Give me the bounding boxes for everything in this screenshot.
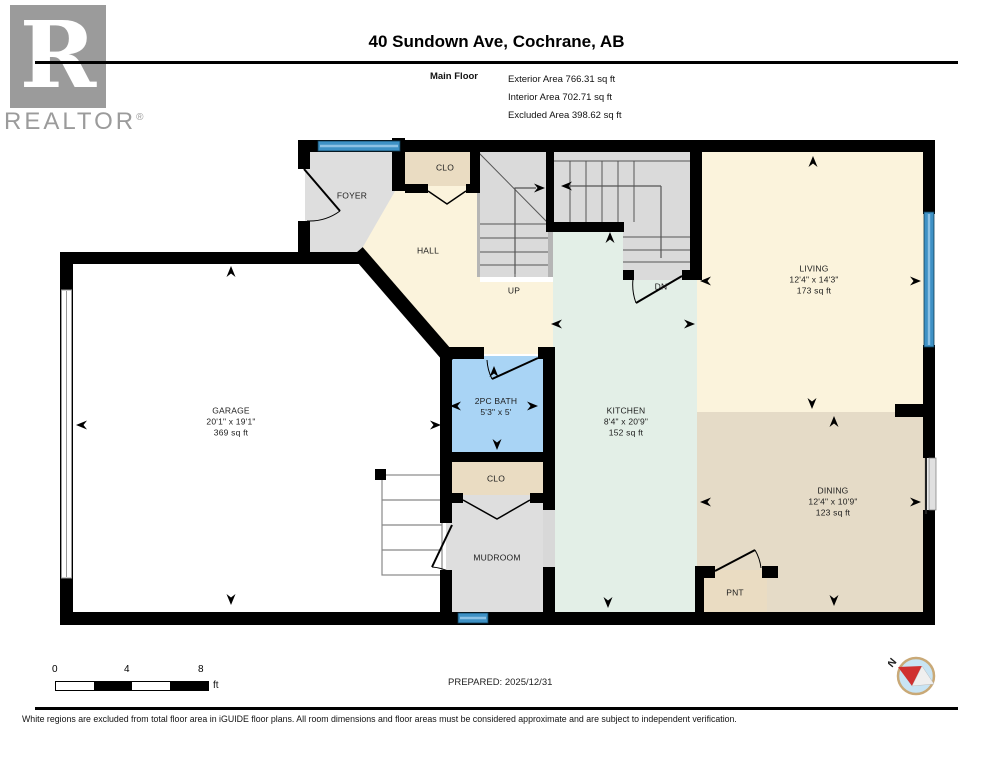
room-label-clo-upper: CLO — [436, 162, 454, 173]
floor-plan-drawing — [0, 0, 993, 768]
scale-tick-8: 8 — [198, 664, 204, 675]
room-name: DINING — [808, 485, 857, 496]
footer-disclaimer: White regions are excluded from total fl… — [22, 714, 737, 724]
scale-unit: ft — [213, 680, 219, 691]
scale-bar — [55, 681, 209, 691]
room-name: CLO — [436, 162, 454, 173]
room-dims: 12'4" x 14'3" — [789, 274, 838, 285]
room-label-mudroom: MUDROOM — [473, 552, 520, 563]
room-name: CLO — [487, 473, 505, 484]
room-label-dining: DINING 12'4" x 10'9" 123 sq ft — [808, 485, 857, 518]
living-window — [924, 212, 934, 347]
compass-north-label: N — [888, 656, 899, 670]
room-area: 369 sq ft — [206, 428, 255, 439]
patio-door — [926, 458, 936, 514]
room-name: KITCHEN — [604, 405, 648, 416]
room-name: LIVING — [789, 263, 838, 274]
room-dims: 12'4" x 10'9" — [808, 496, 857, 507]
room-name: UP — [508, 285, 520, 296]
footer-divider — [35, 707, 958, 710]
scale-tick-4: 4 — [124, 664, 130, 675]
room-name: GARAGE — [206, 405, 255, 416]
room-area: 152 sq ft — [604, 428, 648, 439]
room-name: PNT — [726, 587, 744, 598]
foyer-window — [318, 141, 400, 151]
room-label-foyer: FOYER — [337, 190, 367, 201]
compass-rose: N — [888, 648, 944, 704]
room-dims: 8'4" x 20'9" — [604, 416, 648, 427]
stair-post — [375, 469, 386, 480]
room-fills — [70, 145, 925, 614]
garage-door — [62, 290, 72, 578]
prepared-date: PREPARED: 2025/12/31 — [448, 677, 552, 688]
room-label-dn: DN — [655, 281, 668, 292]
room-dims: 20'1" x 19'1" — [206, 416, 255, 427]
room-label-hall: HALL — [417, 245, 439, 256]
room-label-living: LIVING 12'4" x 14'3" 173 sq ft — [789, 263, 838, 296]
floorplan-page: R REALTOR® 40 Sundown Ave, Cochrane, AB … — [0, 0, 993, 768]
room-name: HALL — [417, 245, 439, 256]
room-label-up: UP — [508, 285, 520, 296]
room-name: 2PC BATH — [475, 396, 518, 407]
room-label-garage: GARAGE 20'1" x 19'1" 369 sq ft — [206, 405, 255, 438]
garage-steps — [375, 469, 442, 575]
mudroom-kitchen-opening — [543, 510, 555, 567]
room-label-kitchen: KITCHEN 8'4" x 20'9" 152 sq ft — [604, 405, 648, 438]
mudroom-window — [458, 613, 488, 623]
room-label-bath: 2PC BATH 5'3" x 5' — [475, 396, 518, 418]
scale-tick-0: 0 — [52, 664, 58, 675]
room-name: MUDROOM — [473, 552, 520, 563]
room-name: FOYER — [337, 190, 367, 201]
room-area: 173 sq ft — [789, 286, 838, 297]
room-name: DN — [655, 281, 668, 292]
room-label-clo-lower: CLO — [487, 473, 505, 484]
room-dims: 5'3" x 5' — [475, 407, 518, 418]
room-area: 123 sq ft — [808, 508, 857, 519]
room-label-pantry: PNT — [726, 587, 744, 598]
